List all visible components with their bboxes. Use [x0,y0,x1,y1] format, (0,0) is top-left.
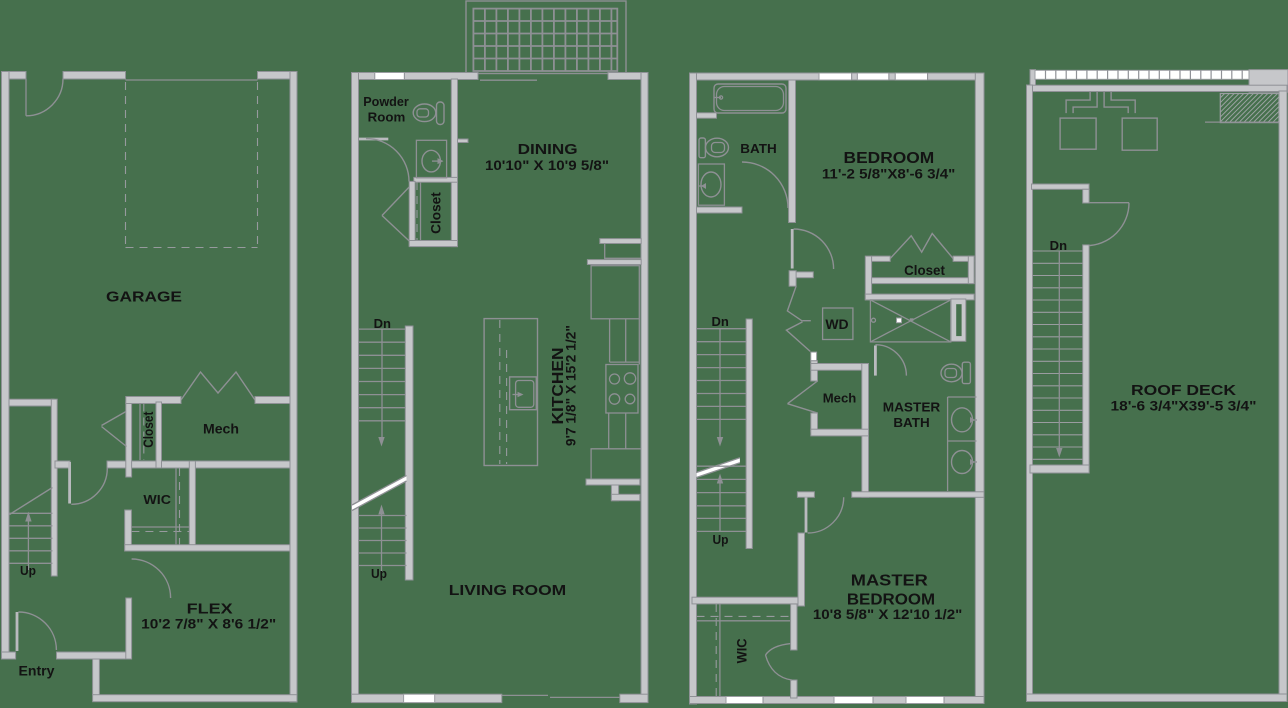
svg-text:ROOF DECK: ROOF DECK [1131,383,1237,399]
svg-text:Dn: Dn [1050,238,1067,253]
svg-text:Room: Room [368,110,406,125]
svg-text:BATH: BATH [740,141,776,156]
svg-text:Closet: Closet [904,263,945,278]
svg-text:11'-2 5/8"X8'-6 3/4": 11'-2 5/8"X8'-6 3/4" [822,165,956,181]
svg-text:9'7 1/8" X 15'2 1/2": 9'7 1/8" X 15'2 1/2" [564,325,579,446]
svg-text:BEDROOM: BEDROOM [847,592,935,609]
svg-text:Mech: Mech [203,421,239,437]
svg-text:MASTER: MASTER [851,572,928,589]
svg-text:Up: Up [371,566,387,581]
svg-text:Closet: Closet [429,192,444,234]
svg-text:10'10" X 10'9 5/8": 10'10" X 10'9 5/8" [485,158,609,173]
svg-text:WD: WD [825,317,849,332]
svg-text:DINING: DINING [518,142,578,158]
svg-text:Entry: Entry [19,664,56,679]
svg-text:WIC: WIC [734,638,750,663]
svg-text:Dn: Dn [374,316,391,331]
svg-text:WIC: WIC [143,492,171,507]
svg-text:Powder: Powder [363,94,409,109]
svg-text:Up: Up [713,532,729,547]
svg-text:Mech: Mech [823,390,857,405]
svg-text:10'2 7/8" X 8'6 1/2": 10'2 7/8" X 8'6 1/2" [141,616,276,632]
svg-text:Up: Up [20,563,36,578]
svg-text:BATH: BATH [893,415,929,430]
svg-text:LIVING ROOM: LIVING ROOM [449,583,567,599]
svg-text:MASTER: MASTER [883,400,941,415]
svg-text:GARAGE: GARAGE [106,290,182,306]
svg-text:18'-6 3/4"X39'-5 3/4": 18'-6 3/4"X39'-5 3/4" [1111,399,1257,414]
svg-text:Dn: Dn [712,314,729,329]
svg-text:10'8 5/8" X 12'10 1/2": 10'8 5/8" X 12'10 1/2" [813,607,963,622]
svg-text:Closet: Closet [140,411,156,447]
